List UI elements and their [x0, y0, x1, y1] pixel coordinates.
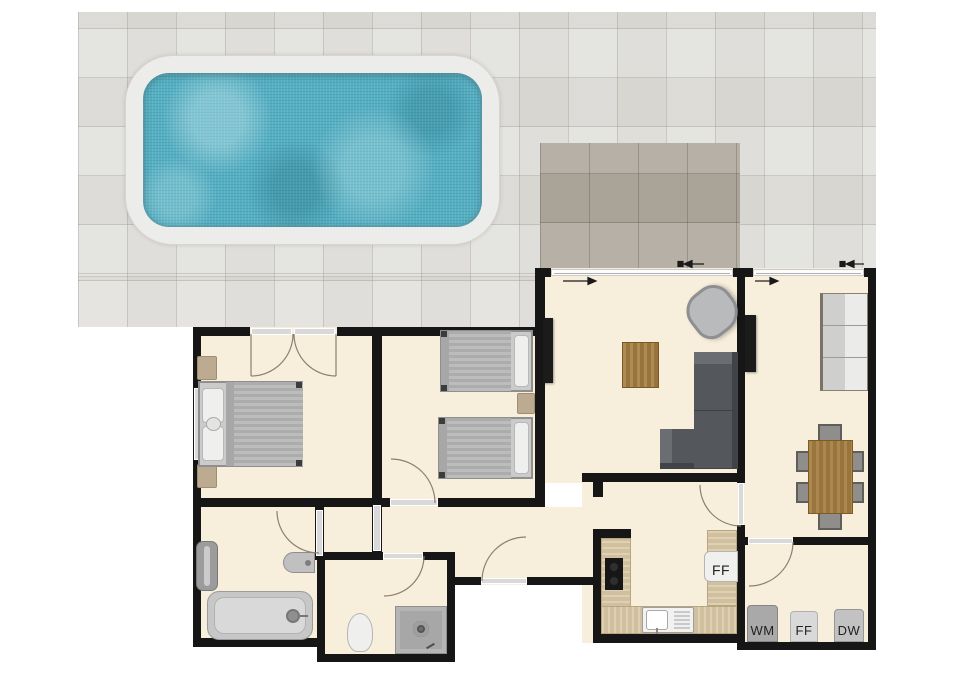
wall-segment [593, 529, 601, 643]
bathroom-door [316, 510, 323, 556]
pillow [202, 426, 224, 461]
bed-post [296, 460, 302, 466]
patio-door-leaf [251, 328, 292, 335]
kitchen-sink [642, 607, 694, 633]
patio-door-leaf [294, 328, 335, 335]
sofa-seam [823, 357, 867, 358]
blanket [439, 418, 511, 478]
radiator-rail [204, 546, 210, 586]
wall-segment [593, 473, 603, 497]
nightstand [517, 393, 535, 414]
wall-segment [737, 537, 745, 650]
tv [543, 318, 553, 383]
wall-segment [438, 498, 541, 507]
bed-post [296, 382, 302, 388]
dishwasher-label: DW [838, 623, 861, 638]
wall-segment [455, 577, 481, 585]
utility-fridge-freezer-label: FF [796, 623, 813, 638]
sink-faucet [656, 628, 658, 634]
single-bed [440, 330, 533, 392]
washing-machine-label: WM [750, 623, 774, 638]
utility-door [748, 538, 793, 544]
nightstand [197, 464, 217, 488]
wc-door [383, 553, 423, 559]
bathtub-tap [298, 615, 308, 617]
pillow [514, 422, 529, 474]
dining-door [738, 483, 744, 525]
wall-segment [582, 473, 739, 482]
sink-basin [646, 610, 668, 630]
cooktop [605, 558, 623, 590]
nightstand [197, 356, 217, 380]
sofa-seam [823, 325, 867, 326]
wall-segment [593, 634, 745, 643]
burner [610, 577, 618, 585]
double-bed [198, 381, 303, 467]
single-bed [438, 417, 533, 479]
tv [745, 315, 756, 372]
coffee-table [622, 342, 659, 388]
wall-segment [793, 537, 876, 545]
wall-segment [745, 268, 753, 277]
entry-door [481, 578, 527, 584]
fridge-freezer: FF [704, 551, 738, 582]
sofa-armrest [694, 352, 732, 364]
dining-chair [818, 512, 842, 530]
wall-segment [193, 498, 382, 507]
sofa-seam [694, 410, 732, 411]
washing-machine: WM [747, 605, 778, 642]
sofa-armrest [660, 429, 672, 463]
swimming-pool [143, 73, 482, 227]
wall-segment [868, 268, 876, 650]
burner [610, 563, 618, 571]
floor-plan: FF WM FF DW [0, 0, 960, 679]
bathroom-sink [283, 552, 315, 573]
dishwasher: DW [834, 609, 864, 642]
terrace-tiles [540, 143, 740, 272]
wall-segment [737, 268, 745, 483]
radiator [196, 541, 218, 591]
toilet [347, 613, 373, 652]
shower [395, 606, 447, 654]
fridge-freezer-label: FF [712, 562, 730, 578]
sliding-door-living [551, 269, 733, 276]
wall-segment [317, 552, 325, 662]
dining-table [808, 440, 853, 514]
bathtub [207, 591, 313, 640]
corner-sofa [694, 352, 738, 468]
patio-tiles-lower [78, 274, 541, 327]
door-opening [373, 505, 381, 551]
bed-post [439, 472, 445, 478]
sliding-door-dining [753, 269, 864, 276]
bed-post [441, 331, 447, 337]
sink-drainer [674, 611, 690, 629]
pillow [514, 335, 529, 387]
wall-segment [535, 268, 545, 507]
sofa-back-cushions [845, 294, 867, 390]
blanket [226, 382, 303, 466]
cushion [206, 417, 221, 431]
wall-segment [447, 552, 455, 662]
wall-segment [527, 577, 601, 585]
shower-head [413, 621, 429, 637]
wall-segment [193, 327, 250, 336]
door-opening [390, 499, 438, 506]
bed-post [439, 418, 445, 424]
sofa [820, 293, 868, 391]
utility-fridge-freezer: FF [790, 611, 818, 642]
blanket [441, 331, 511, 391]
sink-tap [305, 560, 311, 566]
wall-segment [737, 642, 876, 650]
wall-segment [317, 654, 455, 662]
bed-post [441, 385, 447, 391]
